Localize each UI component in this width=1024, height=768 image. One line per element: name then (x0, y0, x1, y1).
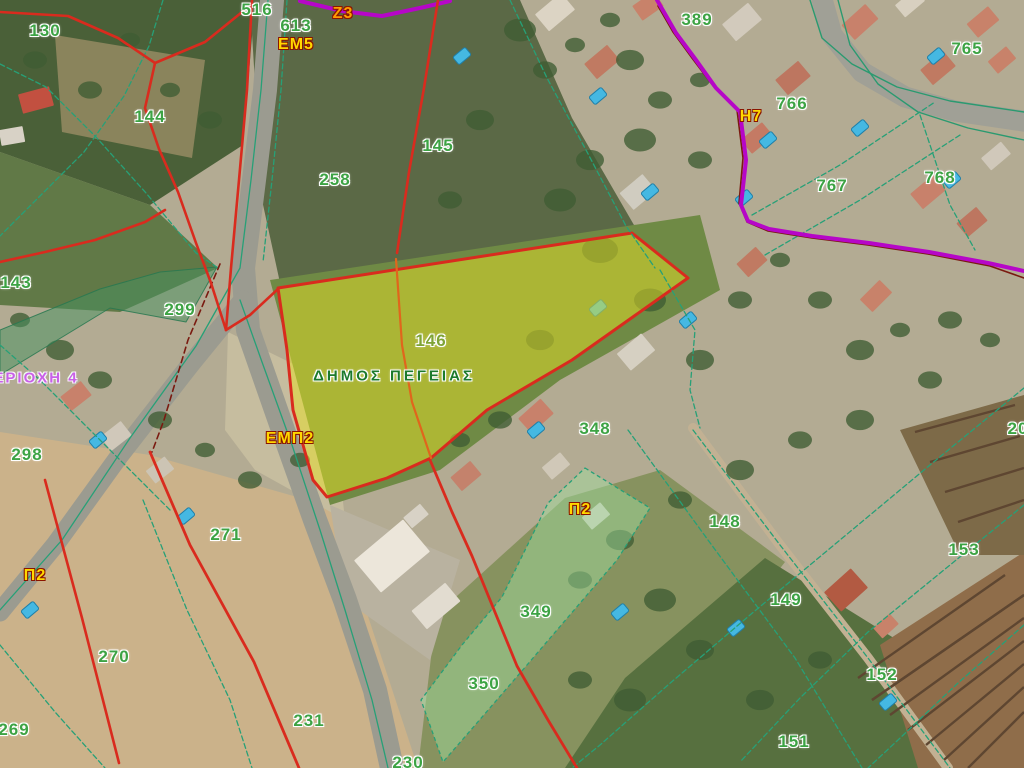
zone-label-Η7: Η7 (740, 108, 762, 126)
map-labels-layer: ΔΗΜΟΣ ΠΕΓΕΙΑΣ 146 ΕΡΙΟΧΗ 4 1305166133897… (0, 0, 1024, 768)
parcel-label-349: 349 (520, 602, 551, 622)
map-viewport[interactable]: ΔΗΜΟΣ ΠΕΓΕΙΑΣ 146 ΕΡΙΟΧΗ 4 1305166133897… (0, 0, 1024, 768)
parcel-label-613: 613 (280, 16, 311, 36)
municipality-label: ΔΗΜΟΣ ΠΕΓΕΙΑΣ (313, 368, 475, 385)
parcel-label-151: 151 (778, 732, 809, 752)
zone-label-Π2: Π2 (569, 501, 591, 519)
parcel-label-153: 153 (948, 540, 979, 560)
parcel-label-269: 269 (0, 720, 30, 740)
parcel-label-145: 145 (422, 136, 453, 156)
parcel-label-350: 350 (468, 674, 499, 694)
zone-label-Π2: Π2 (24, 567, 46, 585)
parcel-label-20: 20 (1008, 419, 1024, 439)
parcel-label-152: 152 (866, 665, 897, 685)
parcel-label-298: 298 (11, 445, 42, 465)
parcel-label-144: 144 (134, 107, 165, 127)
parcel-label-230: 230 (392, 753, 423, 768)
parcel-label-143: 143 (0, 273, 31, 293)
selected-parcel-label: 146 (415, 331, 446, 351)
parcel-label-299: 299 (164, 300, 195, 320)
area-label: ΕΡΙΟΧΗ 4 (0, 370, 79, 387)
parcel-label-270: 270 (98, 647, 129, 667)
parcel-label-258: 258 (319, 170, 350, 190)
zone-label-ΕΜΠ2: ΕΜΠ2 (266, 430, 314, 448)
parcel-label-767: 767 (816, 176, 847, 196)
parcel-label-765: 765 (951, 39, 982, 59)
zone-label-Ζ3: Ζ3 (333, 5, 354, 23)
parcel-label-389: 389 (681, 10, 712, 30)
parcel-label-766: 766 (776, 94, 807, 114)
parcel-label-148: 148 (709, 512, 740, 532)
parcel-label-271: 271 (210, 525, 241, 545)
parcel-label-149: 149 (770, 590, 801, 610)
parcel-label-130: 130 (29, 21, 60, 41)
parcel-label-516: 516 (241, 0, 272, 20)
parcel-label-768: 768 (924, 168, 955, 188)
zone-label-ΕΜ5: ΕΜ5 (278, 36, 314, 54)
parcel-label-231: 231 (293, 711, 324, 731)
parcel-label-348: 348 (579, 419, 610, 439)
